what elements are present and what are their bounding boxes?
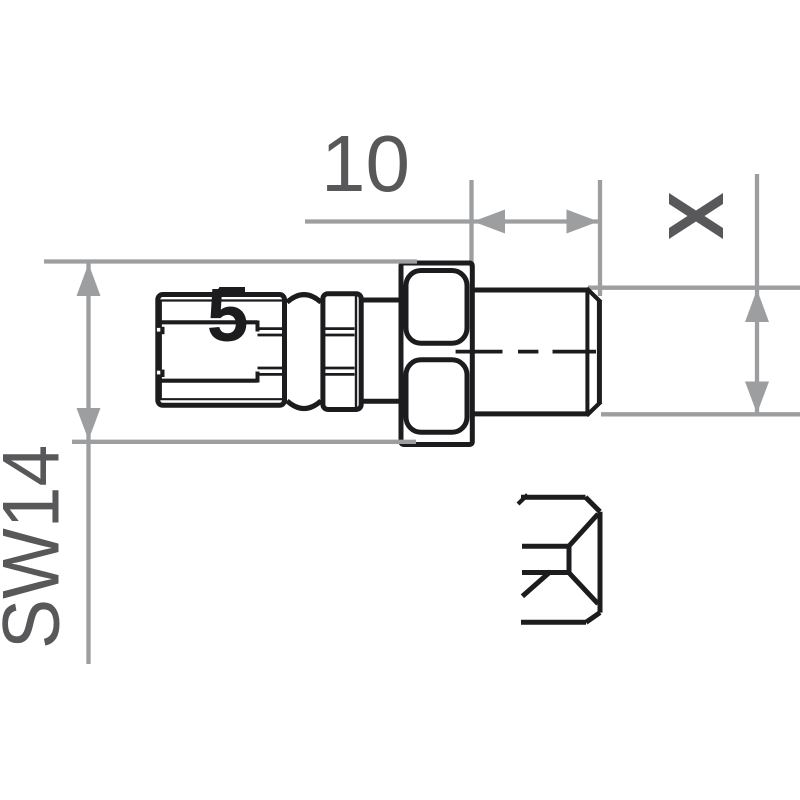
svg-text:SW14: SW14 bbox=[0, 445, 76, 649]
svg-text:5: 5 bbox=[207, 273, 249, 357]
svg-text:10: 10 bbox=[321, 119, 410, 208]
